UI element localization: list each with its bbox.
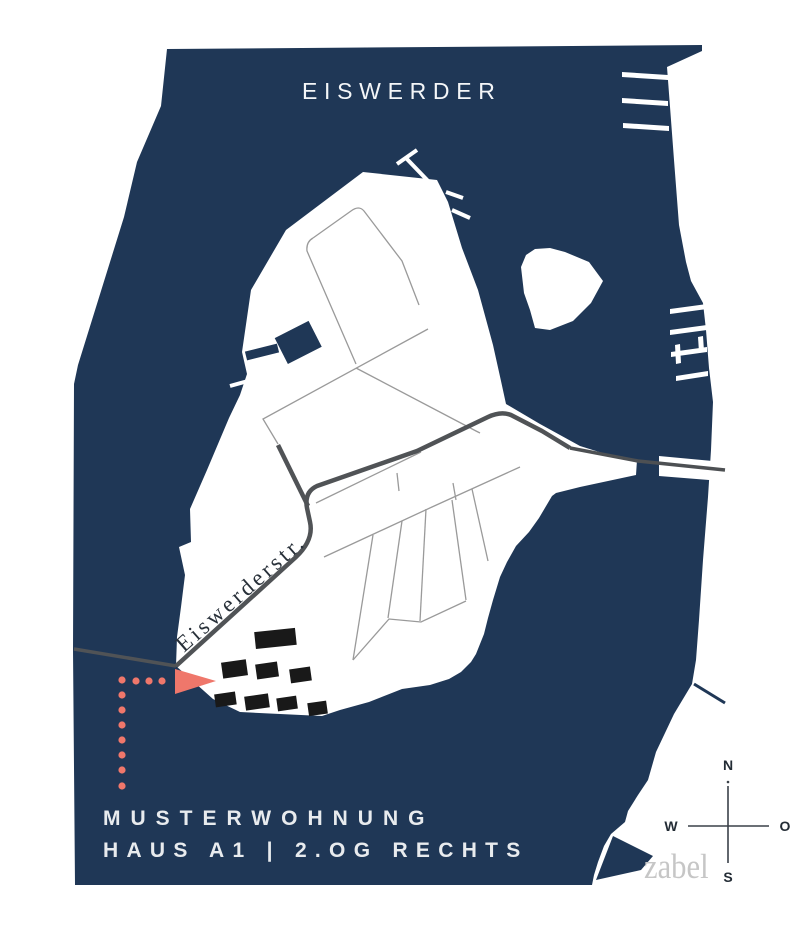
svg-text:zabel: zabel — [644, 848, 709, 886]
svg-text:HAUS A1 | 2.OG RECHTS: HAUS A1 | 2.OG RECHTS — [103, 839, 529, 862]
svg-text:EISWERDER: EISWERDER — [302, 78, 502, 104]
svg-text:W: W — [664, 818, 678, 834]
svg-text:O: O — [780, 818, 791, 834]
svg-text:MUSTERWOHNUNG: MUSTERWOHNUNG — [103, 807, 434, 830]
svg-text:S: S — [723, 869, 732, 885]
svg-text:N: N — [723, 757, 733, 773]
